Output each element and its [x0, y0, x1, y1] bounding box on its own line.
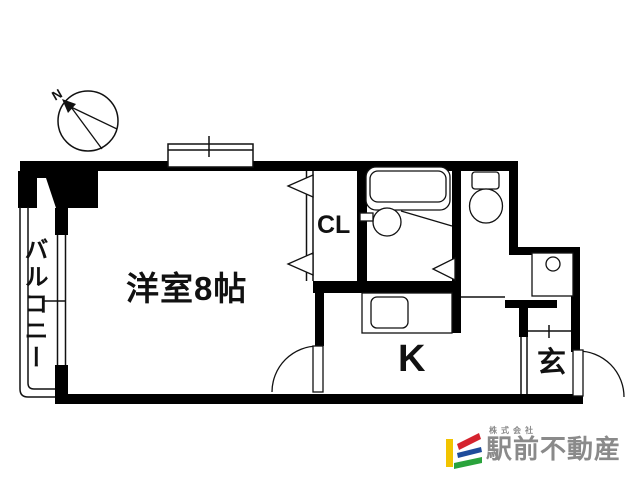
compass-needle-line-2	[71, 107, 102, 149]
balcony-label: バルコニー	[21, 237, 45, 372]
closet-label: CL	[317, 213, 350, 238]
floor-plan-drawing: N	[0, 0, 640, 480]
washbasin	[532, 253, 573, 296]
entrance-door	[573, 350, 624, 397]
wall-bath-toilet-divider	[452, 171, 461, 333]
wall-kitchen-top	[313, 281, 461, 293]
toilet	[470, 172, 503, 223]
bath-sink	[373, 208, 401, 236]
wall-left-upper	[55, 207, 68, 235]
closet-folding-door-bottom	[288, 253, 313, 275]
entrance-label: 玄	[537, 349, 566, 378]
living-room-label: 洋室8帖	[126, 272, 247, 305]
logo-bar-green	[454, 457, 482, 469]
logo-bar-yellow	[446, 439, 453, 467]
compass-needle-line-1	[71, 107, 117, 129]
top-window-frame	[168, 144, 253, 167]
living-kitchen-door-leaf	[313, 346, 323, 392]
wall-corner-block	[18, 171, 98, 208]
closet-folding-door-top	[288, 175, 313, 197]
top-window	[168, 136, 253, 167]
toilet-tank	[472, 172, 499, 189]
bath-faucet	[360, 213, 373, 221]
toilet-bowl	[470, 189, 503, 223]
kitchen-fixtures	[362, 293, 452, 333]
bath-folding-door	[433, 258, 455, 280]
kitchen-label: K	[398, 340, 425, 378]
company-name: 駅前不動産	[486, 436, 621, 462]
logo-mark	[446, 433, 482, 469]
wall-living-kitchen-divider	[315, 293, 324, 346]
compass-icon: N	[49, 86, 118, 151]
floor-plan-page: N バルコニー 洋室8帖 CL K 玄 株式会社 駅前不動産	[0, 0, 640, 480]
bath-counter-line	[401, 211, 452, 226]
kitchen-sink	[371, 297, 408, 328]
wall-genkan-left	[519, 303, 528, 337]
entrance-door-arc	[578, 351, 624, 397]
living-kitchen-door	[272, 346, 323, 392]
compass-circle	[58, 91, 118, 151]
wall-left-lower	[55, 365, 68, 398]
washbasin-drain	[546, 257, 560, 271]
entrance-door-leaf	[573, 350, 583, 396]
wall-hall-bar	[505, 300, 557, 308]
living-kitchen-door-arc	[272, 346, 318, 392]
bathroom-fixtures	[360, 167, 452, 236]
wall-bottom	[55, 394, 583, 404]
logo-bar-red	[457, 433, 481, 450]
bathtub	[366, 167, 450, 210]
wall-right-upper	[509, 171, 518, 255]
compass-north-label: N	[49, 86, 65, 104]
